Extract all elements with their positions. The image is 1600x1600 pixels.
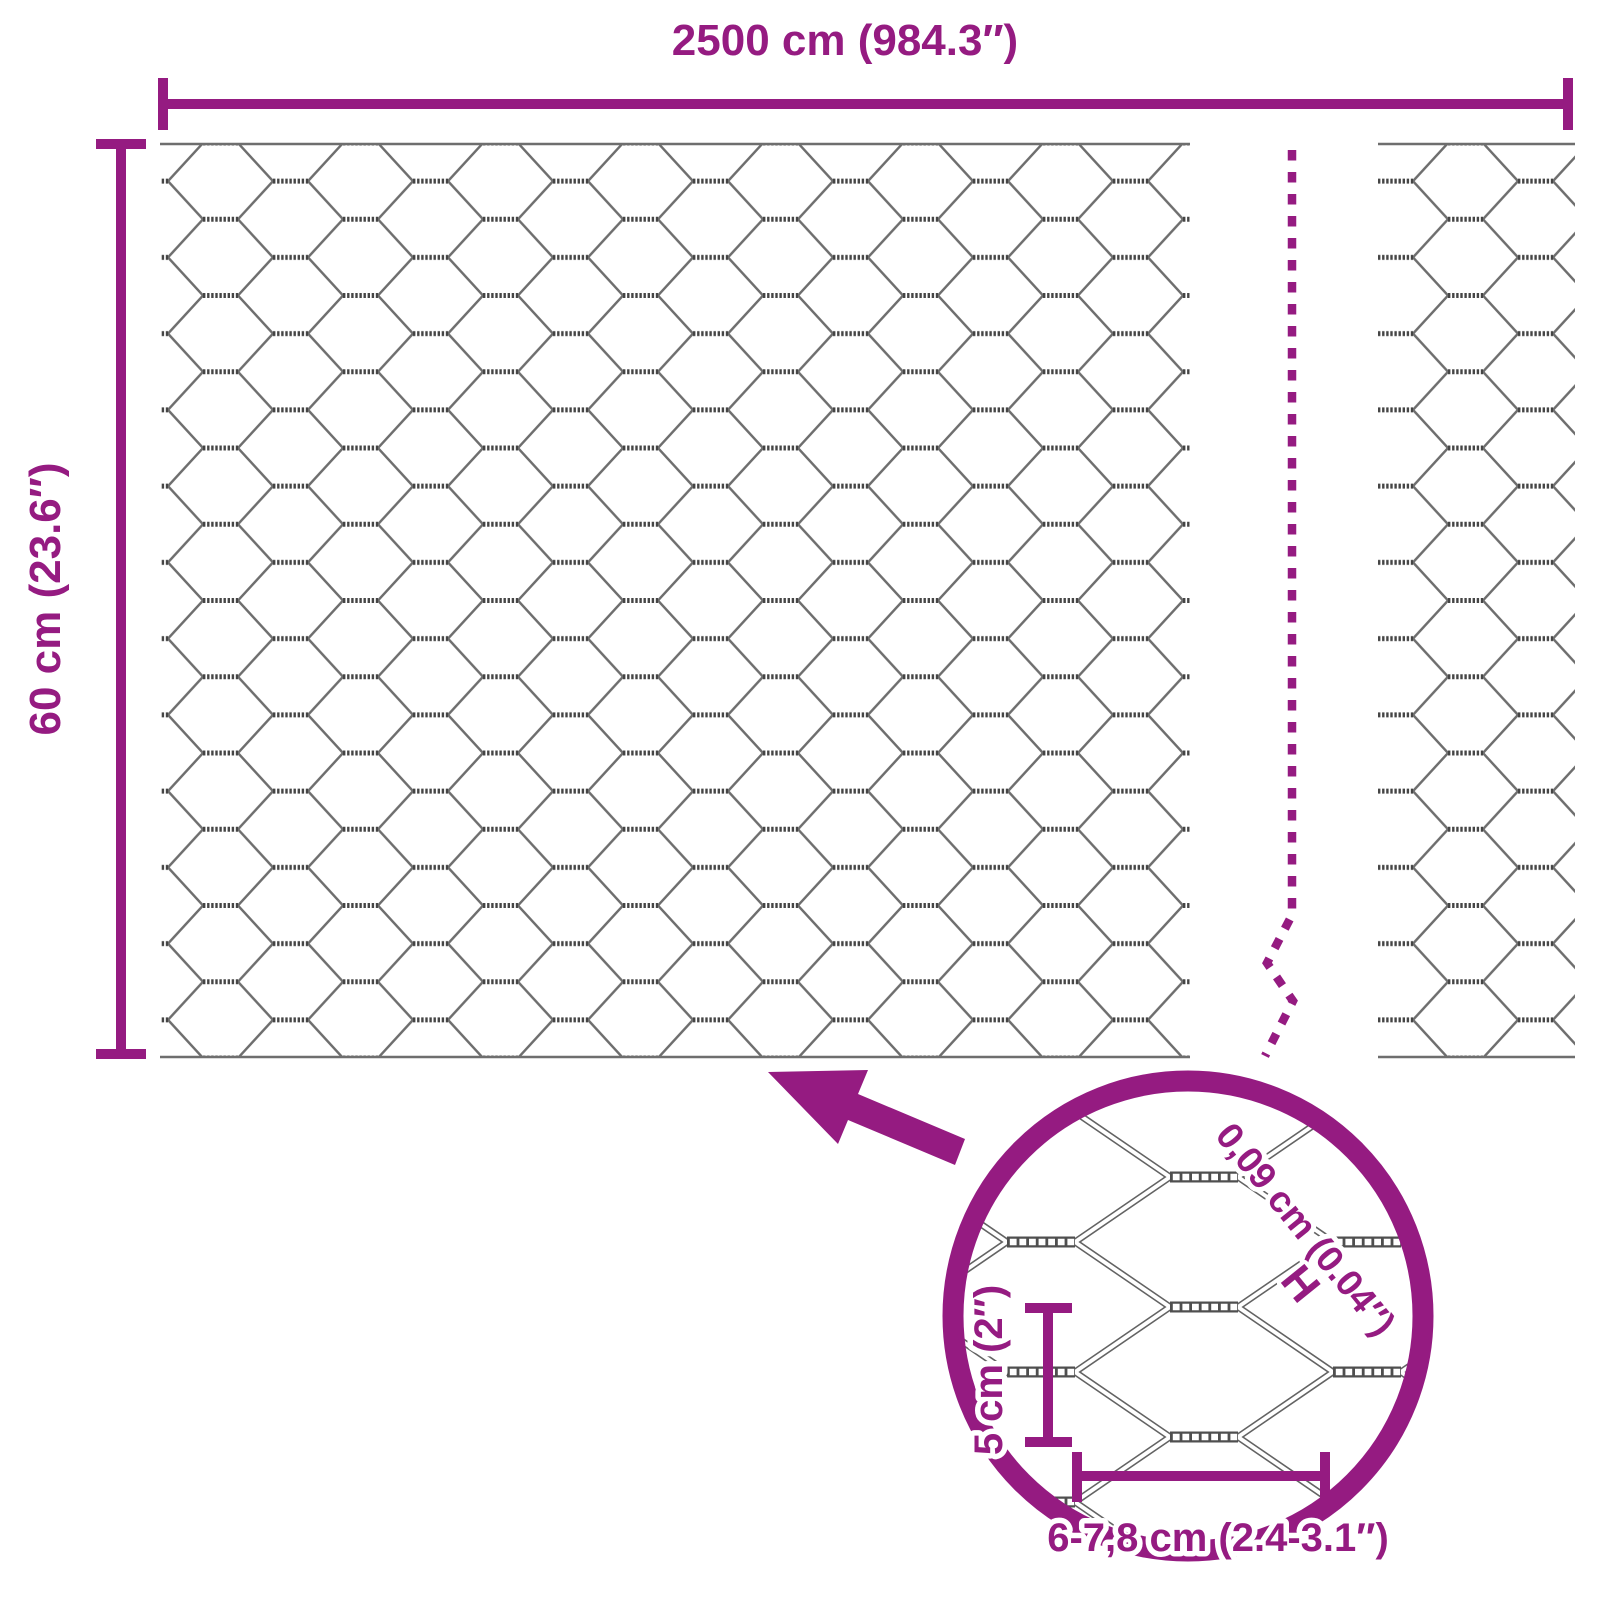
detail-circle: 5 cm (2″) 6-7,8 cm (2.4-3.1″) 0,09 cm (0… bbox=[940, 1068, 1440, 1568]
width-dimension-line bbox=[163, 78, 1568, 130]
width-dimension-label: 2500 cm (984.3″) bbox=[672, 16, 1018, 65]
mesh-panel-right bbox=[1378, 143, 1575, 1058]
height-dimension: 60 cm (23.6″) bbox=[21, 144, 146, 1054]
mesh-left-fill bbox=[160, 143, 1190, 1058]
top-width-dimension: 2500 cm (984.3″) bbox=[163, 16, 1568, 130]
mesh-size-label: 6-7,8 cm (2.4-3.1″) bbox=[1047, 1516, 1389, 1560]
product-dimension-diagram: 2500 cm (984.3″) 60 cm (23.6″) 5 cm (2″)… bbox=[0, 0, 1600, 1600]
mesh-right-fill bbox=[1378, 143, 1575, 1058]
diagram-stage: 2500 cm (984.3″) 60 cm (23.6″) 5 cm (2″)… bbox=[0, 0, 1600, 1600]
height-dimension-label: 60 cm (23.6″) bbox=[21, 462, 70, 735]
cell-height-label: 5 cm (2″) bbox=[967, 1285, 1011, 1455]
mesh-panel-left bbox=[160, 143, 1190, 1058]
zoom-arrow bbox=[768, 1070, 965, 1165]
height-dimension-line bbox=[96, 144, 146, 1054]
break-line bbox=[1265, 150, 1293, 1056]
